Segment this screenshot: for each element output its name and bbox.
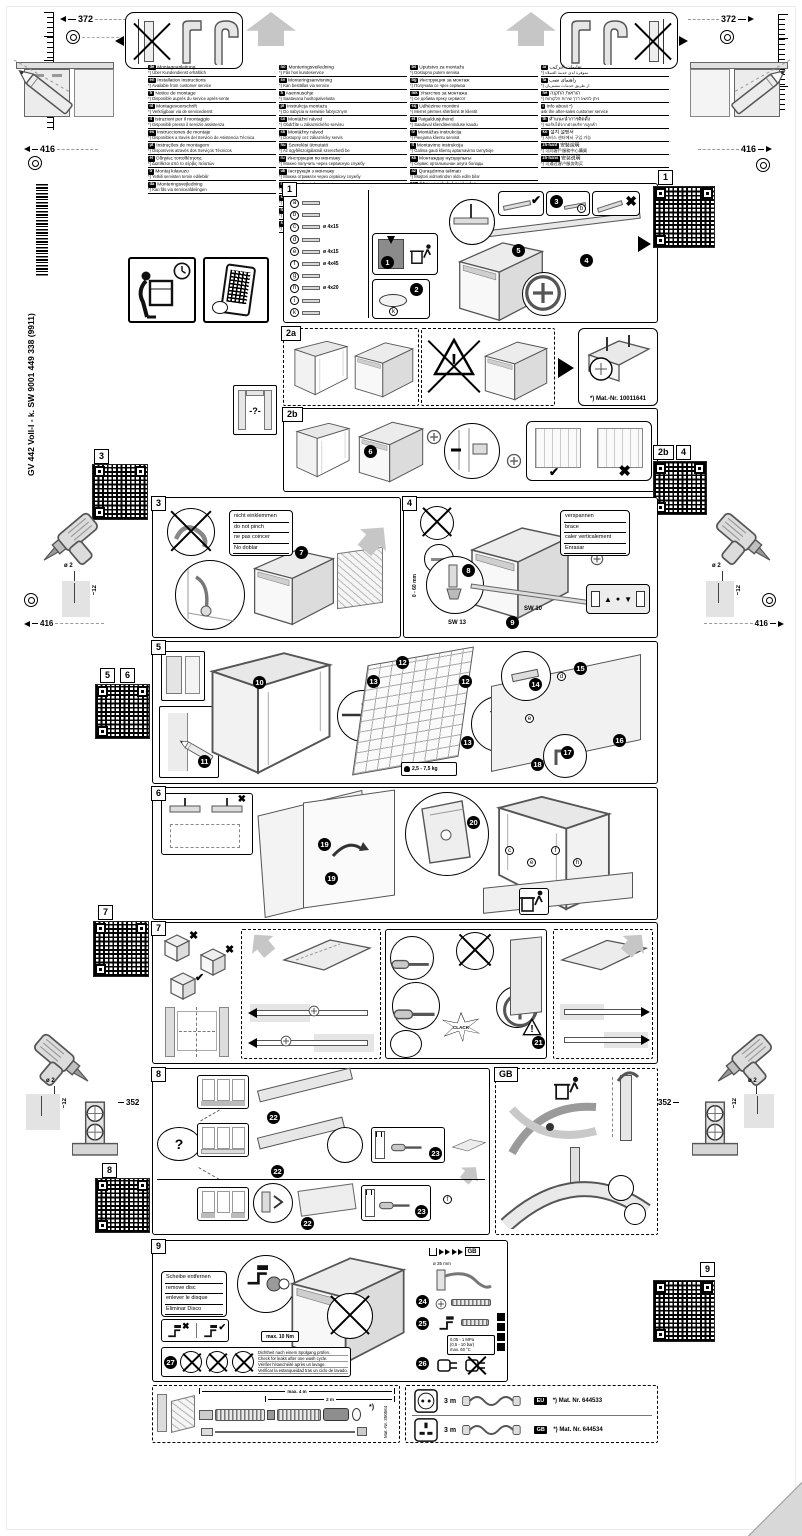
check-icon: ✔ — [549, 465, 559, 479]
cross-icon: ✖ — [182, 1321, 190, 1332]
qr-label: 4 — [676, 445, 691, 460]
panel-3: 3 nicht einklemmendo not pinchne pas coi… — [152, 497, 401, 638]
language-note: *) ניתן להשיג דרך שירות הלקוחות — [541, 97, 669, 102]
language-note: *) Disponibles a través del Servicio de … — [148, 136, 276, 141]
part-letter: f — [290, 260, 299, 269]
part-letter: k — [290, 308, 299, 317]
hardware-icon — [302, 286, 320, 290]
language-entry: fa راهنمای نصب*) از طریق خدمات مشتریان — [541, 77, 669, 90]
door-weight: 2,5 - 7,5 kg — [412, 766, 438, 772]
hardware-icon — [302, 299, 320, 303]
language-entry: en Installation instructions*) Available… — [148, 77, 276, 90]
hole-mark-icon — [762, 593, 776, 607]
torque-value: max. 10 Nm — [266, 1334, 294, 1340]
hardware-icon — [302, 225, 320, 229]
panel-9: 9 Scheibe entfernenremove discenlever le… — [152, 1240, 508, 1382]
wall-type-box: ✔ ✖ — [526, 421, 652, 481]
part-letter: g — [290, 272, 299, 281]
mark-cabinet-sketch-right — [688, 58, 796, 124]
note-line: enlever le disque — [165, 1294, 223, 1305]
part-ref: e — [527, 858, 536, 867]
hardware-icon — [302, 213, 320, 217]
step-badge: 15 — [574, 662, 587, 675]
language-entry: tr Montaj kılavuzu*) Yetkili servisten t… — [148, 168, 276, 181]
pencil-icon — [10, 56, 116, 124]
part-ref: h — [573, 858, 582, 867]
door-types-box-right — [560, 12, 678, 69]
power-cord-row-eu: 3 m EU *) Mat. Nr. 644533 — [414, 1389, 652, 1413]
part-row: eø 4x15 — [290, 246, 366, 258]
qr-code-step-8 — [95, 1178, 150, 1233]
language-entry: az Quraşdırma təlimatı*) Müştəri xidməti… — [410, 168, 538, 181]
part-ref: b — [577, 204, 586, 213]
language-note: *) Dostupno putem servisa — [410, 71, 538, 76]
language-entry: th คำแนะนำการติดตั้ง*) ขอรับได้จากฝ่ายบร… — [541, 116, 669, 129]
part-letter: b — [290, 211, 299, 220]
rail-row — [250, 1004, 374, 1022]
mat-nr-644533: *) Mat. Nr. 644533 — [553, 1398, 602, 1404]
hole-mark-icon — [28, 156, 42, 170]
pressure-box: 0,05 - 1 MPa(0,5 - 10 bar)max. 60 °C — [447, 1335, 495, 1355]
cross-icon — [424, 331, 482, 401]
front-view-box — [161, 651, 205, 701]
part-row: a — [290, 197, 366, 209]
klick-step-box: 2 k — [372, 279, 430, 319]
part-letter: a — [290, 199, 299, 208]
language-note: *) Saatavana huoltopalvelusta — [279, 97, 407, 102]
language-entry: fi Asennusohje*) Saatavana huoltopalvelu… — [279, 90, 407, 103]
step-badge: 6 — [364, 445, 377, 458]
detail-circle — [522, 272, 566, 316]
part-size: ø 4x20 — [323, 285, 339, 291]
language-entry: cs Montážní návod*) Obdržíte u zákaznick… — [279, 116, 407, 129]
wall-grid — [337, 547, 383, 609]
language-note: *) Се добива преку сервисот — [410, 97, 538, 102]
part-row: d — [290, 234, 366, 246]
pressure-line: max. 60 °C — [450, 1347, 492, 1352]
carry-time-box — [128, 257, 196, 323]
tap-icon — [437, 1315, 457, 1331]
bracket-detail-circle — [327, 1127, 363, 1163]
plinth-option-front — [197, 1187, 249, 1221]
power-cord-box: 3 m EU *) Mat. Nr. 644533 3 m GB *) Mat.… — [405, 1385, 658, 1443]
weight-icon — [404, 766, 410, 772]
drain-hose-dia: ø 35 mm — [433, 1261, 451, 1266]
hardware-icon — [302, 311, 320, 315]
language-entry: fr Notice de montage*) Disponible auprès… — [148, 90, 276, 103]
drill-depth: ~12 — [92, 585, 98, 595]
cabinet-side-panel — [484, 335, 548, 403]
qr-label: 9 — [700, 1262, 715, 1277]
step-badge: 5 — [512, 244, 525, 257]
language-note: *) Galima gauti klientų aptarnavimo tarn… — [410, 149, 538, 154]
arrow-right-icon — [638, 236, 651, 252]
dim-total: max. 4 m — [199, 1388, 395, 1394]
panel-label: 9 — [151, 1239, 166, 1254]
cord-length: 3 m — [444, 1427, 456, 1434]
language-note: *) Сервис орталығынан алуға болады — [410, 162, 538, 167]
step-badge: 13 — [461, 736, 474, 749]
language-note: *) Disponíveis através dos Serviços Técn… — [148, 149, 276, 154]
hose-hook — [616, 1067, 640, 1083]
step-badge: 22 — [267, 1111, 280, 1124]
drill-depth: ~12 — [62, 1098, 68, 1108]
mat-nr-350564: Mat.-Nr. 350564 — [383, 1392, 388, 1438]
hardware-icon — [302, 250, 320, 254]
step-badge: 20 — [467, 816, 480, 829]
language-note: *) 可向客戶服務中心購買 — [541, 149, 669, 154]
step-badge: 1 — [381, 256, 394, 269]
part-ref: c — [505, 846, 514, 855]
panel-label: 5 — [151, 640, 166, 655]
pinch-warning-circle — [167, 508, 215, 556]
part-row: k — [290, 307, 366, 319]
plinth-corner — [451, 1121, 487, 1171]
qr-label: 8 — [102, 1163, 117, 1178]
step-badge: 23 — [415, 1205, 428, 1218]
step-badge: 19 — [325, 872, 338, 885]
language-note: *) Получава се чрез сервиза — [410, 84, 538, 89]
cross-icon: ✖ — [189, 929, 198, 942]
language-entry: ru Инструкция по монтажу*) Можно получит… — [279, 155, 407, 168]
rail-row — [560, 1004, 648, 1020]
step-badge: 22 — [301, 1217, 314, 1230]
step-badge: 26 — [416, 1357, 429, 1370]
wood-block — [706, 581, 734, 617]
language-entry: zh-hant 安裝說明*) 可向客戶服務中心購買 — [541, 142, 669, 155]
hinge-drill-left: ø 2 ~12 352 — [20, 1036, 150, 1162]
part-row: i — [290, 295, 366, 307]
language-note: *) Available from customer service — [148, 84, 276, 89]
step-badge: 22 — [271, 1165, 284, 1178]
door-profile-icon — [210, 18, 240, 65]
drill-depth: ~12 — [736, 585, 742, 595]
language-entry: mk Упатство за монтажа*) Се добива преку… — [410, 90, 538, 103]
step-badge: 17 — [561, 746, 574, 759]
foil-step-box: 1 — [372, 233, 438, 275]
niche-question-box: -?- — [233, 385, 277, 435]
part-ref: e — [525, 714, 534, 723]
screwdriver-circle — [392, 982, 440, 1030]
installation-sheet: 372 372 416 416 de Montageanleitung*) Üb… — [0, 0, 802, 1536]
wrong-box: ✖ — [592, 191, 640, 216]
door-types-box-left — [125, 12, 243, 69]
language-note: *) 可通过客户服务购买 — [541, 162, 669, 167]
panel-2a-screws-box: *) Mat.-Nr. 10011641 — [578, 328, 658, 406]
qr-code-step-9 — [653, 1280, 715, 1342]
hose-nut — [267, 1410, 275, 1420]
note-line: remove disc — [165, 1284, 223, 1295]
leak-check-box: 27 Dichtheit nach einem Spülgang prüfen.… — [161, 1347, 351, 1377]
cross-icon: ✖ — [618, 462, 631, 480]
clip-circle — [390, 1030, 422, 1058]
plinth-rail — [257, 1068, 353, 1103]
hand-icon — [212, 301, 228, 314]
door-centering-sketch — [165, 1007, 229, 1057]
brace-note: verspannenbracecaler verticalementEnrasa… — [560, 510, 630, 556]
door-profile-icon — [178, 18, 208, 65]
language-entry: sq Udhëzime montimi*) Merret përmes shër… — [410, 103, 538, 116]
step-badge: 27 — [164, 1356, 177, 1369]
clack-label: CLACK — [444, 1014, 479, 1041]
template-sheet — [352, 646, 474, 775]
detail-circle — [501, 651, 551, 701]
language-entry: it Istruzioni per il montaggio*) Disponi… — [148, 116, 276, 129]
clip-detail-circle — [253, 1183, 293, 1223]
step-badge: 21 — [532, 1036, 545, 1049]
drill-pilot-right: ø 2 ~12 416 — [676, 515, 800, 639]
panel-label: 8 — [151, 1067, 166, 1082]
svg-text:!: ! — [530, 1024, 533, 1035]
arrow-left-icon — [248, 1038, 257, 1048]
wrong-circle — [456, 932, 494, 970]
qr-label: 2b — [653, 445, 674, 460]
hose-seal — [352, 1408, 361, 1421]
step-badge: 18 — [531, 758, 544, 771]
socket-eu-icon — [414, 1389, 438, 1413]
step-badge: 3 — [550, 195, 563, 208]
niche-iso — [205, 648, 337, 778]
language-entry: lv Montāžas instrukcija*) Pieejama klien… — [410, 129, 538, 142]
dishwasher-iso — [468, 520, 572, 620]
clock-icon — [173, 262, 191, 280]
qr-label: 5 — [100, 668, 115, 683]
plug-icon — [437, 1355, 459, 1375]
language-entry: et Paigaldusjuhend*) Saadaval klienditee… — [410, 116, 538, 129]
mat-nr-644534: *) Mat. Nr. 644534 — [553, 1427, 602, 1433]
rail-row — [250, 1034, 374, 1052]
cross-icon: ✖ — [625, 193, 637, 210]
drill-pilot-left: ø 2 ~12 416 — [20, 515, 144, 639]
disposal-icon — [520, 889, 546, 913]
warning-triangle-icon: ! — [522, 1018, 542, 1036]
language-note: *) Можна отримати через сервісну службу — [279, 175, 407, 180]
note-line: do not pinch — [233, 523, 289, 534]
part-size: ø 4x45 — [323, 261, 339, 267]
dim-416-right: 416 — [698, 144, 772, 154]
step-badge: 10 — [253, 676, 266, 689]
wood-block — [62, 581, 90, 617]
pliers-icon — [504, 1087, 608, 1163]
language-entry: uk Інструкція з монтажу*) Можна отримати… — [279, 168, 407, 181]
step-badge: 13 — [367, 675, 380, 688]
step3-box: 3 b — [546, 191, 590, 216]
hose-coupling — [323, 1408, 349, 1421]
alignment-legend: ▲●▼ — [586, 584, 650, 614]
hinge-drill-right: 352 ø 2 ~12 — [658, 1036, 788, 1162]
disposal-icon — [410, 242, 434, 266]
note-line: Eliminar Disco — [165, 1305, 223, 1316]
language-note: *) Kan beställas via service — [279, 84, 407, 89]
language-note: *) متوفرة لدى خدمة العملاء — [541, 71, 669, 76]
language-entry: sv Monteringsanvisning*) Kan beställas v… — [279, 77, 407, 90]
language-entry: bg Инструкция за монтаж*) Получава се чр… — [410, 77, 538, 90]
worktop-screws — [585, 335, 653, 383]
qr-code-step-7 — [93, 921, 149, 977]
dim-352-left: 352 — [118, 1098, 152, 1107]
part-row: hø 4x20 — [290, 282, 366, 294]
dim-416-left: 416 — [24, 144, 98, 154]
door-weight-box: 2,5 - 7,5 kg — [401, 762, 457, 776]
barcode — [36, 184, 48, 276]
arrow-up-icon — [506, 12, 556, 46]
hose-segment — [461, 1319, 489, 1326]
language-entry: el Οδηγίες τοποθέτησης*) Διατίθεται από … — [148, 155, 276, 168]
step-badge: 16 — [613, 734, 626, 747]
arrow-up-icon — [246, 12, 296, 46]
part-ref: k — [389, 307, 398, 316]
panel-label: GB — [494, 1067, 518, 1082]
inlet-hose-row — [435, 1297, 495, 1307]
leak-line: Verificar la estanqueidad tras un ciclo … — [258, 1368, 348, 1374]
wall — [157, 1394, 167, 1432]
check-icon: ✔ — [218, 1322, 226, 1333]
drain-icon — [429, 1248, 437, 1256]
language-note: *) Verkrijgbaar via de servicedienst — [148, 110, 276, 115]
cross-icon — [453, 929, 495, 971]
drain-pipe — [620, 1075, 632, 1141]
panel-8: 8 ? 22 22 23 22 23 f — [152, 1068, 490, 1235]
cord-icon — [462, 1392, 528, 1410]
language-entry: da Monteringsvejledning*) Kan fås via se… — [148, 181, 276, 194]
drill-depth: ~12 — [732, 1098, 738, 1108]
valve — [201, 1428, 213, 1436]
step-badge: 24 — [416, 1295, 429, 1308]
measure-box: 23 — [371, 1127, 445, 1163]
panel-2b: 2b 6 ✔ ✖ — [283, 408, 658, 492]
qr-label: 1 — [658, 170, 673, 185]
drill-diameter: ø 2 — [748, 1078, 757, 1084]
detail-circle — [444, 423, 500, 479]
screwdriver-icon — [378, 1196, 412, 1216]
dim-mid: 2 m — [265, 1396, 395, 1402]
drill-diameter: ø 2 — [712, 563, 721, 569]
part-ref: d — [557, 672, 566, 681]
wood-block — [744, 1094, 774, 1128]
panel-gb: GB — [495, 1068, 658, 1235]
hose-extension-box: max. 4 m 2 m *) Mat.-Nr. 350564 — [152, 1385, 400, 1443]
hole-mark-icon — [756, 158, 770, 172]
language-note: *) Yetkili servisten temin edilebilir — [148, 175, 276, 180]
note-line: verspannen — [564, 512, 626, 523]
rail-row — [560, 1032, 648, 1048]
hole-mark-icon — [24, 593, 38, 607]
foot-range: 0 - 60 mm — [412, 574, 418, 597]
region-badge: GB — [534, 1426, 547, 1434]
dim-352-right: 352 — [658, 1098, 692, 1107]
qr-code-steps-5-6 — [95, 684, 150, 739]
cross-icon — [323, 1289, 375, 1341]
detail-circle — [449, 199, 495, 245]
panel-5: 5 11 10 12 13 12 13 2,5 - 7,5 kg 14 15 d… — [152, 641, 658, 784]
pointer-left-icon — [115, 36, 124, 46]
part-letter: e — [290, 247, 299, 256]
note-line: ne pas coincer — [233, 533, 289, 544]
wrench-size-13: SW 13 — [448, 620, 466, 626]
drill-diameter: ø 2 — [64, 563, 73, 569]
step-badge: 7 — [295, 546, 308, 559]
hole-mark-icon — [720, 30, 734, 44]
step-badge: 23 — [429, 1147, 442, 1160]
region-badge: EU — [534, 1397, 547, 1405]
part-letter: h — [290, 284, 299, 293]
niche-iso — [294, 419, 352, 481]
bracket-sketch — [170, 824, 240, 848]
tap-icon — [202, 1324, 220, 1338]
part-size: ø 4x15 — [323, 249, 339, 255]
language-entry: pt Instruções de montagem*) Disponíveis … — [148, 142, 276, 155]
language-entry: kk Монтаждау нұсқаулығы*) Сервис орталығ… — [410, 155, 538, 168]
pencil-icon — [688, 56, 794, 124]
language-entry: bs Uputstvo za montažu*) Dostupno putem … — [410, 64, 538, 77]
language-entry: zh-hans 安装说明*) 可通过客户服务购买 — [541, 155, 669, 168]
note-line: nicht einklemmen — [233, 512, 289, 523]
hole-mark-icon — [66, 30, 80, 44]
part-ref: f — [551, 846, 560, 855]
screw-icon — [426, 429, 442, 445]
language-note: *) Do nabycia w serwisie fabrycznym — [279, 110, 407, 115]
step-badge: 8 — [462, 564, 475, 577]
cord-icon — [462, 1421, 528, 1439]
cross-icon — [629, 17, 675, 66]
pinch-note: nicht einklemmendo not pinchne pas coinc… — [229, 510, 293, 556]
part-row: g — [290, 270, 366, 282]
hose-elbow — [199, 1410, 213, 1420]
tool-warning-box: ✖ ✔ — [161, 1319, 229, 1342]
clamp-detail-circle — [608, 1175, 634, 1201]
gb-ref-label: GB — [465, 1247, 480, 1256]
question-mark: ? — [175, 1136, 184, 1152]
language-entry: hu Szerelési útmutató*) Az ügyfélszolgál… — [279, 142, 407, 155]
clamp-detail-circle — [624, 1203, 646, 1225]
language-note: *) Pieejama klientu servisā — [410, 136, 538, 141]
language-entry: es Instrucciones de montaje*) Disponible… — [148, 129, 276, 142]
language-note: *) Über Kundendienst erhältlich — [148, 71, 276, 76]
hinge-bracket — [72, 1098, 118, 1156]
panel-label: 2a — [281, 326, 301, 341]
app-qr-box — [203, 257, 269, 323]
plinth-option-front — [197, 1123, 249, 1157]
arrow-left-icon — [248, 1008, 257, 1018]
screwdriver-icon — [390, 1138, 424, 1158]
panel-label: 1 — [282, 182, 297, 197]
note-line: brace — [564, 523, 626, 534]
language-note: *) Obdržíte u zákaznického servisu — [279, 123, 407, 128]
panel-1: 1 abcø 4x15deø 4x15fø 4x45ghø 4x20ik 1 2… — [283, 183, 658, 323]
footnote-star: *) — [369, 1404, 374, 1411]
qr-label: 3 — [94, 449, 109, 464]
wood-block — [26, 1094, 60, 1130]
unknown-dimension: -?- — [234, 406, 276, 416]
part-letter: c — [290, 223, 299, 232]
worktop-corner — [280, 934, 374, 980]
language-entry: no Monteringsveiledning*) Fås hos kundes… — [279, 64, 407, 77]
arrow-right-icon — [558, 358, 574, 378]
plinth-option-front — [197, 1075, 249, 1109]
question-cloud: ? — [157, 1127, 201, 1161]
mat-nr-10011641: *) Mat.-Nr. 10011641 — [579, 396, 657, 402]
qr-label: 6 — [120, 668, 135, 683]
part-row: b — [290, 209, 366, 221]
fixing-main-box: CLACK ! 21 — [385, 929, 547, 1059]
note-line: Enrasar — [564, 544, 626, 555]
dim-416-drill-left: 416 — [24, 619, 104, 628]
plinth-panel — [297, 1183, 356, 1217]
language-column-1: de Montageanleitung*) Über Kundendienst … — [148, 64, 276, 194]
hardware-icon — [302, 274, 320, 278]
niche-iso — [292, 337, 350, 399]
hose-end — [357, 1427, 367, 1436]
